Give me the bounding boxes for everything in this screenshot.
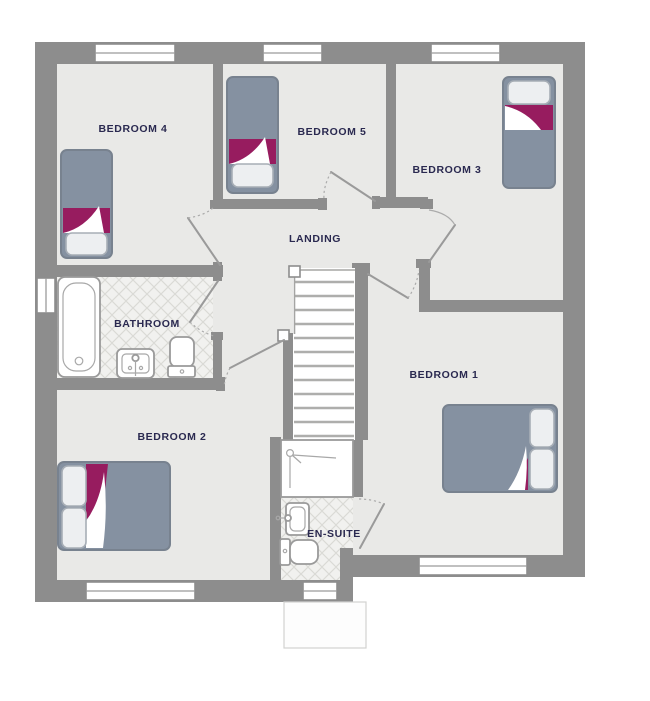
bedroom2-label: BEDROOM 2 bbox=[138, 431, 207, 443]
wall-cap bbox=[372, 196, 380, 209]
bedroom2-bed bbox=[58, 462, 170, 550]
wall-bed3-stub bbox=[419, 262, 430, 306]
floor-plan-page: BEDROOM 4 BEDROOM 5 BEDROOM 3 LANDING BA… bbox=[0, 0, 650, 701]
window-left bbox=[37, 278, 55, 313]
shower bbox=[281, 440, 353, 497]
wall-bed4-bathroom bbox=[57, 265, 223, 277]
window-bottom-ensuite bbox=[303, 582, 337, 600]
landing-label: LANDING bbox=[289, 233, 341, 245]
stair-shaft bbox=[293, 268, 355, 440]
wall-bottom-join bbox=[340, 548, 353, 602]
bedroom1-label: BEDROOM 1 bbox=[410, 369, 479, 381]
window-bottom-bedroom2 bbox=[86, 582, 195, 600]
wall-bed4-bed5 bbox=[213, 64, 223, 204]
porch-outline bbox=[284, 602, 366, 648]
wall-cap bbox=[318, 198, 327, 210]
wall-left bbox=[35, 42, 57, 602]
wall-stairs-right bbox=[355, 265, 368, 440]
bedroom3-label: BEDROOM 3 bbox=[413, 164, 482, 176]
stair-post-top bbox=[289, 266, 300, 277]
wall-bathroom-bed2 bbox=[35, 378, 222, 390]
wall-ensuite-right bbox=[353, 440, 363, 497]
bedroom3-bed bbox=[503, 77, 555, 188]
wall-stairs-left bbox=[283, 333, 293, 443]
floor-plan: BEDROOM 4 BEDROOM 5 BEDROOM 3 LANDING BA… bbox=[0, 0, 650, 701]
ensuite-label: EN-SUITE bbox=[307, 528, 361, 540]
wall-bed5-bed3 bbox=[386, 64, 396, 200]
bathroom-label: BATHROOM bbox=[114, 318, 180, 330]
wall-bed5-landing bbox=[213, 199, 325, 209]
ensuite-toilet bbox=[280, 539, 318, 565]
bathroom-sink bbox=[117, 349, 154, 378]
bedroom4-label: BEDROOM 4 bbox=[99, 123, 168, 135]
window-top-2 bbox=[263, 44, 322, 62]
window-bottom-bedroom1 bbox=[419, 557, 527, 575]
bedroom1-bed bbox=[443, 405, 557, 492]
bathroom-toilet bbox=[168, 337, 195, 377]
wall-right bbox=[563, 42, 585, 577]
window-top-3 bbox=[431, 44, 500, 62]
wall-cap bbox=[216, 377, 225, 391]
wall-cap bbox=[420, 199, 433, 209]
bedroom5-label: BEDROOM 5 bbox=[298, 126, 367, 138]
wall-bed3-bed1 bbox=[419, 300, 563, 312]
bedroom5-bed bbox=[227, 77, 278, 193]
window-top-1 bbox=[95, 44, 175, 62]
bedroom4-bed bbox=[61, 150, 112, 258]
bathtub bbox=[58, 277, 100, 377]
